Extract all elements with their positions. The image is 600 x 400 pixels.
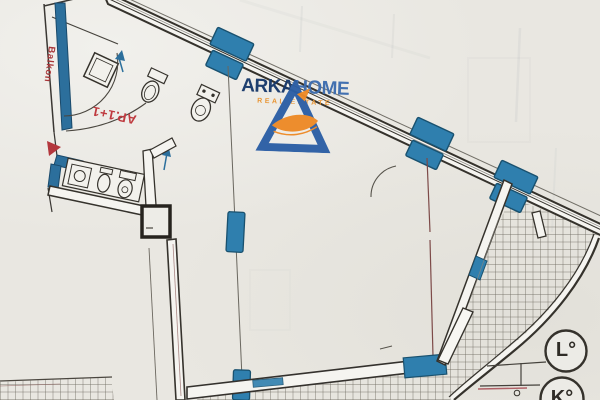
watermark-logo: ARKAHOME REAL ESTATE [233, 78, 358, 108]
logo-mark [231, 78, 357, 154]
shaft-column [142, 206, 170, 237]
interior-wall-vertical [142, 138, 185, 400]
level-symbol-k: K° [542, 387, 582, 400]
toilet-icon [138, 68, 168, 106]
level-symbol-l: L° [546, 339, 586, 362]
bottom-left-edge [0, 377, 112, 386]
grid-line-b [427, 158, 433, 356]
toilet-icon [187, 84, 220, 124]
livingroom-door-arc [371, 166, 396, 197]
balcony-parapet [449, 234, 599, 400]
red-arrow-icon [47, 141, 61, 156]
window-band [55, 3, 72, 130]
shower-icon [84, 53, 119, 88]
sink-icon [68, 164, 92, 188]
wall-stub [532, 211, 546, 238]
blue-arrow-icon [115, 50, 125, 61]
column-marker [226, 212, 245, 253]
floor-plan-photo: AP.1+1 Balkon L° K° ARKAHOME REAL ESTATE [0, 0, 600, 400]
bottom-wall [187, 354, 447, 399]
plan-linework [0, 0, 600, 400]
